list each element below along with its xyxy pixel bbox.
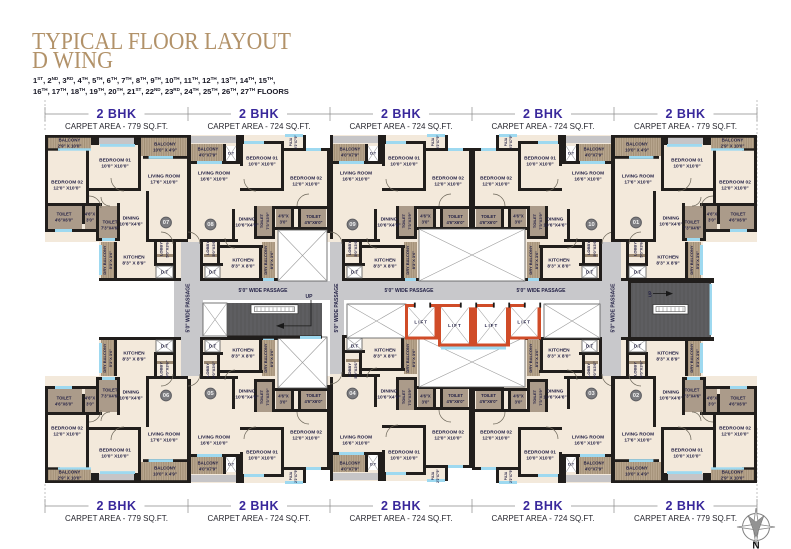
svg-text:3'0": 3'0" (422, 399, 430, 404)
svg-text:LIVING ROOM: LIVING ROOM (622, 431, 654, 437)
svg-text:3'0": 3'0" (280, 399, 288, 404)
svg-text:10'6"X4'6": 10'6"X4'6" (119, 222, 142, 228)
svg-text:BEDROOM 02: BEDROOM 02 (290, 429, 322, 435)
svg-text:2 BHK: 2 BHK (239, 499, 279, 513)
svg-text:4'6"X6'0": 4'6"X6'0" (446, 220, 464, 225)
svg-text:8'3"X 3'0": 8'3"X 3'0" (411, 251, 416, 269)
svg-text:8'3" X 8'9": 8'3" X 8'9" (122, 261, 145, 267)
svg-text:5'0"X3'6": 5'0"X3'6" (211, 361, 216, 378)
svg-text:4'6"X6'0": 4'6"X6'0" (304, 220, 322, 225)
svg-text:4'6"X6'0": 4'6"X6'0" (479, 399, 497, 404)
svg-text:D.T: D.T (161, 344, 169, 349)
svg-text:D.T: D.T (586, 270, 594, 275)
svg-text:5'0"X3'6": 5'0"X3'6" (592, 239, 597, 256)
svg-text:D.T: D.T (228, 152, 235, 156)
svg-text:12'0" X10'0": 12'0" X10'0" (434, 182, 461, 188)
svg-text:5'0"X3'6": 5'0"X3'6" (164, 240, 169, 257)
svg-text:2'2"X7'9": 2'2"X7'9" (294, 135, 298, 149)
svg-text:10'6"X4'6": 10'6"X4'6" (377, 223, 400, 229)
svg-text:TOILET: TOILET (103, 388, 118, 393)
svg-text:BEDROOM 02: BEDROOM 02 (719, 179, 751, 185)
svg-text:7'3"X3'9": 7'3"X3'9" (407, 388, 412, 405)
svg-text:10'0" X10'0": 10'0" X10'0" (673, 164, 700, 170)
svg-text:CARPET AREA - 724 SQ.FT.: CARPET AREA - 724 SQ.FT. (208, 122, 311, 131)
svg-text:03: 03 (588, 391, 595, 397)
svg-text:LIVING ROOM: LIVING ROOM (622, 173, 654, 179)
svg-text:4'6"X: 4'6"X (513, 214, 524, 219)
svg-text:7'3"X3'9": 7'3"X3'9" (407, 212, 412, 229)
svg-text:DRY BALCONY: DRY BALCONY (405, 245, 410, 274)
svg-text:4'0"X7'9": 4'0"X7'9" (585, 152, 603, 157)
svg-text:09: 09 (349, 222, 356, 228)
svg-text:4'0"X7'9": 4'0"X7'9" (341, 152, 359, 157)
svg-text:4'6"X: 4'6"X (420, 214, 431, 219)
svg-text:BALCONY: BALCONY (626, 141, 648, 146)
svg-text:8'3" X 8'9": 8'3" X 8'9" (656, 261, 679, 267)
svg-text:DRY BALCONY: DRY BALCONY (102, 343, 107, 372)
svg-text:10'0" X10'0": 10'0" X10'0" (101, 454, 128, 460)
svg-text:TOILET: TOILET (532, 389, 537, 404)
svg-text:2 BHK: 2 BHK (96, 107, 136, 121)
svg-text:2 BHK: 2 BHK (523, 107, 563, 121)
svg-text:8'3"X 3'0": 8'3"X 3'0" (534, 251, 539, 269)
svg-text:DINING: DINING (547, 388, 564, 394)
svg-text:17'6" X10'0": 17'6" X10'0" (150, 438, 177, 444)
svg-text:8'3" X 8'9": 8'3" X 8'9" (656, 357, 679, 363)
svg-text:5'3"X 3'0": 5'3"X 3'0" (108, 251, 113, 269)
svg-text:DINING: DINING (663, 215, 680, 221)
svg-text:BALCONY: BALCONY (722, 138, 744, 143)
svg-text:2 BHK: 2 BHK (381, 499, 421, 513)
svg-text:10'0" X10'0": 10'0" X10'0" (390, 162, 417, 168)
svg-text:4'6"X: 4'6"X (278, 214, 289, 219)
svg-text:DINING: DINING (381, 388, 398, 394)
svg-text:10'6"X4'6": 10'6"X4'6" (235, 223, 258, 229)
svg-text:17'6" X10'0": 17'6" X10'0" (150, 180, 177, 186)
svg-text:8'3"X 3'0": 8'3"X 3'0" (269, 251, 274, 269)
svg-text:DINING: DINING (547, 216, 564, 222)
svg-text:8'3" X 8'0": 8'3" X 8'0" (547, 354, 570, 360)
svg-text:10'6"X4'6": 10'6"X4'6" (659, 222, 682, 228)
svg-text:LOBBY: LOBBY (633, 362, 638, 376)
svg-text:D.T: D.T (351, 344, 359, 349)
svg-text:D.T: D.T (568, 463, 575, 467)
svg-text:DRY BALCONY: DRY BALCONY (405, 343, 410, 372)
svg-text:BALCONY: BALCONY (154, 466, 176, 471)
svg-text:10'0" X10'0": 10'0" X10'0" (673, 454, 700, 460)
svg-text:2 BHK: 2 BHK (239, 107, 279, 121)
svg-text:5'0"X3'6": 5'0"X3'6" (164, 360, 169, 377)
svg-text:CARPET AREA - 779 SQ.FT.: CARPET AREA - 779 SQ.FT. (634, 514, 737, 523)
svg-text:LIFT: LIFT (414, 319, 428, 324)
svg-text:BEDROOM 01: BEDROOM 01 (99, 157, 131, 163)
svg-text:4'6"X6'0": 4'6"X6'0" (446, 399, 464, 404)
svg-text:LOBBY: LOBBY (586, 363, 591, 377)
svg-text:3'0": 3'0" (515, 399, 523, 404)
svg-text:5'0" WIDE PASSAGE: 5'0" WIDE PASSAGE (611, 283, 617, 333)
svg-text:5'0"X3'6": 5'0"X3'6" (638, 360, 643, 377)
svg-text:CARPET AREA - 779 SQ.FT.: CARPET AREA - 779 SQ.FT. (65, 122, 168, 131)
svg-text:BEDROOM 01: BEDROOM 01 (671, 157, 703, 163)
svg-text:PUJA: PUJA (431, 471, 435, 480)
svg-text:BEDROOM 01: BEDROOM 01 (246, 155, 278, 161)
svg-text:4'6"X6'0": 4'6"X6'0" (304, 399, 322, 404)
svg-text:DINING: DINING (239, 216, 256, 222)
svg-text:10'0" X10'0": 10'0" X10'0" (248, 456, 275, 462)
svg-text:DRY BALCONY: DRY BALCONY (689, 343, 694, 372)
svg-text:LIVING ROOM: LIVING ROOM (340, 434, 372, 440)
svg-text:5'3"X 3'0": 5'3"X 3'0" (695, 349, 700, 367)
svg-text:N: N (752, 541, 759, 549)
svg-text:D.T: D.T (351, 270, 359, 275)
svg-text:KITCHEN: KITCHEN (657, 254, 679, 260)
svg-text:3'0": 3'0" (422, 219, 430, 224)
svg-text:PUJA: PUJA (289, 471, 293, 480)
svg-text:4'6"X: 4'6"X (707, 212, 718, 217)
svg-text:04: 04 (349, 391, 356, 397)
svg-text:BEDROOM 02: BEDROOM 02 (719, 425, 751, 431)
svg-text:5'0" WIDE PASSAGE: 5'0" WIDE PASSAGE (384, 288, 434, 294)
svg-text:10'0" X 4'9": 10'0" X 4'9" (153, 147, 177, 152)
svg-text:BALCONY: BALCONY (340, 147, 361, 152)
svg-text:DRY BALCONY: DRY BALCONY (528, 343, 533, 372)
svg-text:DRY BALCONY: DRY BALCONY (102, 245, 107, 274)
svg-text:10'6"X4'6": 10'6"X4'6" (119, 396, 142, 402)
svg-text:KITCHEN: KITCHEN (657, 350, 679, 356)
svg-text:LIFT: LIFT (485, 323, 499, 328)
svg-text:2'9" X 10'0": 2'9" X 10'0" (58, 476, 82, 481)
svg-text:5'0" WIDE PASSAGE: 5'0" WIDE PASSAGE (186, 283, 192, 333)
svg-text:BEDROOM 01: BEDROOM 01 (388, 155, 420, 161)
svg-text:LIVING ROOM: LIVING ROOM (148, 173, 180, 179)
svg-text:D.T: D.T (161, 270, 169, 275)
svg-text:4'6"X: 4'6"X (85, 212, 96, 217)
svg-text:2'2"X7'9": 2'2"X7'9" (509, 469, 513, 483)
svg-text:4'6"X6'0": 4'6"X6'0" (55, 401, 73, 406)
svg-text:4'6"X: 4'6"X (85, 396, 96, 401)
svg-text:CARPET AREA - 724 SQ.FT.: CARPET AREA - 724 SQ.FT. (492, 122, 595, 131)
svg-text:5'0"X3'6": 5'0"X3'6" (211, 239, 216, 256)
svg-text:BALCONY: BALCONY (340, 461, 361, 466)
svg-text:D.T: D.T (228, 463, 235, 467)
svg-text:3'0": 3'0" (708, 217, 716, 222)
svg-text:7'3"X4'6": 7'3"X4'6" (683, 225, 701, 230)
svg-text:10'0" X 4'9": 10'0" X 4'9" (153, 472, 177, 477)
svg-text:KITCHEN: KITCHEN (374, 257, 396, 263)
svg-text:TOILET: TOILET (481, 393, 496, 398)
svg-text:LIVING ROOM: LIVING ROOM (572, 170, 604, 176)
svg-text:KITCHEN: KITCHEN (232, 347, 254, 353)
svg-text:TOILET: TOILET (532, 213, 537, 228)
svg-text:D.T: D.T (209, 270, 217, 275)
svg-text:BEDROOM 02: BEDROOM 02 (432, 175, 464, 181)
svg-text:12'0" X10'0": 12'0" X10'0" (721, 186, 748, 192)
svg-text:8'3"X 3'0": 8'3"X 3'0" (411, 349, 416, 367)
svg-text:TOILET: TOILET (306, 393, 321, 398)
svg-text:12'0" X10'0": 12'0" X10'0" (292, 182, 319, 188)
svg-text:10'6"X4'6": 10'6"X4'6" (543, 395, 566, 401)
svg-text:LOBBY: LOBBY (347, 363, 352, 377)
svg-text:2'2"X7'9": 2'2"X7'9" (509, 135, 513, 149)
svg-text:TOILET: TOILET (306, 214, 321, 219)
svg-text:BALCONY: BALCONY (59, 470, 81, 475)
svg-text:5'0"X3'6": 5'0"X3'6" (353, 361, 358, 378)
svg-text:2'2"X7'9": 2'2"X7'9" (436, 469, 440, 483)
svg-text:5'0"X3'6": 5'0"X3'6" (638, 240, 643, 257)
svg-text:D WING: D WING (32, 48, 113, 74)
svg-text:D.T: D.T (634, 270, 642, 275)
svg-text:KITCHEN: KITCHEN (548, 257, 570, 263)
svg-text:TOILET: TOILET (57, 212, 72, 217)
svg-text:06: 06 (163, 393, 170, 399)
svg-text:4'6"X: 4'6"X (420, 394, 431, 399)
svg-text:4'0"X7'9": 4'0"X7'9" (341, 466, 359, 471)
svg-text:7'3"X3'9": 7'3"X3'9" (265, 388, 270, 405)
svg-text:16'6" X10'0": 16'6" X10'0" (574, 441, 601, 447)
svg-text:BALCONY: BALCONY (626, 466, 648, 471)
svg-text:2 BHK: 2 BHK (665, 107, 705, 121)
svg-text:CARPET AREA - 724 SQ.FT.: CARPET AREA - 724 SQ.FT. (350, 122, 453, 131)
svg-text:BALCONY: BALCONY (722, 470, 744, 475)
svg-text:BEDROOM 02: BEDROOM 02 (480, 175, 512, 181)
svg-text:DRY BALCONY: DRY BALCONY (263, 343, 268, 372)
svg-text:TOILET: TOILET (685, 388, 700, 393)
svg-text:8'3" X 8'0": 8'3" X 8'0" (231, 354, 254, 360)
svg-text:BEDROOM 02: BEDROOM 02 (432, 429, 464, 435)
svg-text:12'0" X10'0": 12'0" X10'0" (53, 186, 80, 192)
svg-text:D.T: D.T (586, 344, 594, 349)
svg-text:BALCONY: BALCONY (198, 147, 219, 152)
svg-text:DRY BALCONY: DRY BALCONY (528, 245, 533, 274)
svg-text:7'3"X3'9": 7'3"X3'9" (538, 212, 543, 229)
svg-text:4'6"X6'0": 4'6"X6'0" (479, 220, 497, 225)
svg-text:10'0" X 4'9": 10'0" X 4'9" (625, 147, 649, 152)
svg-text:TOILET: TOILET (57, 396, 72, 401)
svg-text:LOBBY: LOBBY (159, 362, 164, 376)
svg-text:5'0"X3'6": 5'0"X3'6" (592, 361, 597, 378)
svg-text:8'3" X 8'9": 8'3" X 8'9" (122, 357, 145, 363)
svg-text:16'6" X10'0": 16'6" X10'0" (200, 177, 227, 183)
svg-text:TOILET: TOILET (401, 213, 406, 228)
svg-text:5'3"X 3'0": 5'3"X 3'0" (108, 349, 113, 367)
svg-text:TOILET: TOILET (103, 220, 118, 225)
svg-text:2 BHK: 2 BHK (665, 499, 705, 513)
svg-text:3'0": 3'0" (86, 217, 94, 222)
svg-text:KITCHEN: KITCHEN (374, 347, 396, 353)
svg-text:5'0" WIDE PASSAGE: 5'0" WIDE PASSAGE (334, 283, 340, 333)
svg-text:7'3"X3'9": 7'3"X3'9" (538, 388, 543, 405)
svg-text:BALCONY: BALCONY (198, 461, 219, 466)
svg-text:8'3" X 8'0": 8'3" X 8'0" (547, 264, 570, 270)
svg-text:01: 01 (633, 220, 640, 226)
svg-text:DRY BALCONY: DRY BALCONY (263, 245, 268, 274)
svg-text:LIFT: LIFT (448, 323, 462, 328)
svg-text:05: 05 (207, 391, 214, 397)
svg-text:2'2"X7'9": 2'2"X7'9" (436, 135, 440, 149)
svg-text:BEDROOM 01: BEDROOM 01 (99, 447, 131, 453)
svg-text:16'6" X10'0": 16'6" X10'0" (342, 441, 369, 447)
svg-text:D.T: D.T (370, 463, 377, 467)
svg-text:D.T: D.T (568, 152, 575, 156)
svg-text:12'0" X10'0": 12'0" X10'0" (482, 182, 509, 188)
svg-text:LIVING ROOM: LIVING ROOM (148, 431, 180, 437)
svg-text:LIFT: LIFT (517, 319, 531, 324)
svg-text:CARPET AREA - 724 SQ.FT.: CARPET AREA - 724 SQ.FT. (208, 514, 311, 523)
svg-text:TOILET: TOILET (259, 213, 264, 228)
svg-text:KITCHEN: KITCHEN (123, 350, 145, 356)
svg-text:PUJA: PUJA (504, 471, 508, 480)
svg-text:12'0" X10'0": 12'0" X10'0" (53, 432, 80, 438)
svg-text:BALCONY: BALCONY (584, 147, 605, 152)
svg-text:DINING: DINING (381, 216, 398, 222)
svg-text:TOILET: TOILET (731, 212, 746, 217)
svg-text:12'0" X10'0": 12'0" X10'0" (434, 436, 461, 442)
svg-text:LOBBY: LOBBY (347, 241, 352, 255)
svg-text:BEDROOM 02: BEDROOM 02 (51, 425, 83, 431)
svg-text:TOILET: TOILET (401, 389, 406, 404)
svg-text:08: 08 (207, 222, 214, 228)
svg-text:BEDROOM 01: BEDROOM 01 (246, 449, 278, 455)
svg-text:TOILET: TOILET (481, 214, 496, 219)
svg-text:10'6"X4'6": 10'6"X4'6" (235, 395, 258, 401)
svg-text:10'6"X4'6": 10'6"X4'6" (543, 223, 566, 229)
svg-text:8'3"X 3'0": 8'3"X 3'0" (534, 349, 539, 367)
svg-text:UP: UP (306, 294, 314, 300)
svg-text:LOBBY: LOBBY (205, 241, 210, 255)
svg-text:CARPET AREA - 779 SQ.FT.: CARPET AREA - 779 SQ.FT. (65, 514, 168, 523)
svg-text:07: 07 (163, 220, 169, 226)
svg-text:10'6"X4'6": 10'6"X4'6" (659, 396, 682, 402)
svg-text:D.T: D.T (209, 344, 217, 349)
svg-text:5'3"X 3'0": 5'3"X 3'0" (695, 251, 700, 269)
svg-text:BEDROOM 01: BEDROOM 01 (388, 449, 420, 455)
svg-text:8'3" X 8'0": 8'3" X 8'0" (373, 354, 396, 360)
svg-text:5'0" WIDE PASSAGE: 5'0" WIDE PASSAGE (238, 288, 288, 294)
svg-text:LOBBY: LOBBY (633, 242, 638, 256)
svg-text:7'3"X4'6": 7'3"X4'6" (101, 393, 119, 398)
svg-text:10'0" X10'0": 10'0" X10'0" (390, 456, 417, 462)
svg-text:8'3" X 8'0": 8'3" X 8'0" (373, 264, 396, 270)
svg-text:TOILET: TOILET (731, 396, 746, 401)
svg-text:5'0" WIDE PASSAGE: 5'0" WIDE PASSAGE (516, 288, 566, 294)
svg-text:BALCONY: BALCONY (584, 461, 605, 466)
svg-text:CARPET AREA - 724 SQ.FT.: CARPET AREA - 724 SQ.FT. (350, 514, 453, 523)
svg-text:2 BHK: 2 BHK (96, 499, 136, 513)
svg-text:BEDROOM 01: BEDROOM 01 (671, 447, 703, 453)
svg-text:8'3" X 8'0": 8'3" X 8'0" (231, 264, 254, 270)
svg-text:BEDROOM 02: BEDROOM 02 (290, 175, 322, 181)
svg-text:2 BHK: 2 BHK (523, 499, 563, 513)
svg-text:4'6"X: 4'6"X (278, 394, 289, 399)
svg-text:2'9" X 10'0": 2'9" X 10'0" (58, 144, 82, 149)
svg-text:TOILET: TOILET (259, 389, 264, 404)
svg-text:10: 10 (588, 222, 594, 228)
svg-text:2'2"X7'9": 2'2"X7'9" (294, 469, 298, 483)
svg-text:7'3"X4'6": 7'3"X4'6" (683, 393, 701, 398)
svg-text:LIVING ROOM: LIVING ROOM (198, 170, 230, 176)
svg-text:10'0" X10'0": 10'0" X10'0" (101, 164, 128, 170)
svg-text:LOBBY: LOBBY (205, 363, 210, 377)
svg-text:3'0": 3'0" (86, 401, 94, 406)
svg-text:4'6"X: 4'6"X (707, 396, 718, 401)
svg-text:8'3"X 3'0": 8'3"X 3'0" (269, 349, 274, 367)
svg-text:10'0" X10'0": 10'0" X10'0" (248, 162, 275, 168)
svg-text:5'0"X3'6": 5'0"X3'6" (353, 239, 358, 256)
svg-text:10'0" X10'0": 10'0" X10'0" (526, 162, 553, 168)
svg-text:TOILET: TOILET (448, 214, 463, 219)
svg-text:16'6" X10'0": 16'6" X10'0" (342, 177, 369, 183)
svg-text:4'0"X7'9": 4'0"X7'9" (199, 466, 217, 471)
svg-text:BALCONY: BALCONY (59, 138, 81, 143)
svg-text:16'6" X10'0": 16'6" X10'0" (200, 441, 227, 447)
svg-text:TOILET: TOILET (448, 393, 463, 398)
svg-text:12'0" X10'0": 12'0" X10'0" (292, 436, 319, 442)
svg-text:02: 02 (633, 393, 639, 399)
svg-text:12'0" X10'0": 12'0" X10'0" (721, 432, 748, 438)
svg-text:4'0"X7'9": 4'0"X7'9" (199, 152, 217, 157)
svg-text:BEDROOM 01: BEDROOM 01 (524, 449, 556, 455)
svg-text:7'3"X4'6": 7'3"X4'6" (101, 225, 119, 230)
svg-text:KITCHEN: KITCHEN (548, 347, 570, 353)
svg-text:BALCONY: BALCONY (154, 141, 176, 146)
svg-text:PUJA: PUJA (289, 137, 293, 146)
svg-text:BEDROOM 02: BEDROOM 02 (51, 179, 83, 185)
svg-text:3'0": 3'0" (515, 219, 523, 224)
svg-text:D.T: D.T (370, 152, 377, 156)
svg-text:D.T: D.T (634, 344, 642, 349)
svg-text:PUJA: PUJA (504, 137, 508, 146)
svg-text:2'9" X 10'0": 2'9" X 10'0" (721, 144, 745, 149)
svg-text:17'6" X10'0": 17'6" X10'0" (624, 180, 651, 186)
svg-text:3'0": 3'0" (708, 401, 716, 406)
svg-text:BEDROOM 02: BEDROOM 02 (480, 429, 512, 435)
svg-text:LIVING ROOM: LIVING ROOM (340, 170, 372, 176)
svg-text:16'6" X10'0": 16'6" X10'0" (574, 177, 601, 183)
svg-text:10'0" X10'0": 10'0" X10'0" (526, 456, 553, 462)
svg-text:LIVING ROOM: LIVING ROOM (572, 434, 604, 440)
svg-text:DINING: DINING (123, 389, 140, 395)
svg-text:LIVING ROOM: LIVING ROOM (198, 434, 230, 440)
svg-text:LOBBY: LOBBY (159, 242, 164, 256)
svg-text:10'6"X4'6": 10'6"X4'6" (377, 395, 400, 401)
svg-text:3'0": 3'0" (280, 219, 288, 224)
svg-text:PUJA: PUJA (431, 137, 435, 146)
svg-text:CARPET AREA - 779 SQ.FT.: CARPET AREA - 779 SQ.FT. (634, 122, 737, 131)
svg-text:4'0"X7'9": 4'0"X7'9" (585, 466, 603, 471)
svg-text:4'6"X6'0": 4'6"X6'0" (729, 217, 747, 222)
svg-text:KITCHEN: KITCHEN (232, 257, 254, 263)
svg-text:4'6"X6'0": 4'6"X6'0" (729, 401, 747, 406)
svg-text:DINING: DINING (239, 388, 256, 394)
svg-text:2'9" X 10'0": 2'9" X 10'0" (721, 476, 745, 481)
svg-text:12'0" X10'0": 12'0" X10'0" (482, 436, 509, 442)
svg-text:LOBBY: LOBBY (586, 241, 591, 255)
svg-text:4'6"X6'0": 4'6"X6'0" (55, 217, 73, 222)
svg-text:4'6"X: 4'6"X (513, 394, 524, 399)
svg-text:DINING: DINING (123, 215, 140, 221)
svg-text:17'6" X10'0": 17'6" X10'0" (624, 438, 651, 444)
svg-text:10'0" X 4'9": 10'0" X 4'9" (625, 472, 649, 477)
svg-text:2 BHK: 2 BHK (381, 107, 421, 121)
svg-text:UP: UP (648, 291, 653, 297)
svg-text:DINING: DINING (663, 389, 680, 395)
svg-text:DRY BALCONY: DRY BALCONY (689, 245, 694, 274)
svg-text:CARPET AREA - 724 SQ.FT.: CARPET AREA - 724 SQ.FT. (492, 514, 595, 523)
svg-text:7'3"X3'9": 7'3"X3'9" (265, 212, 270, 229)
svg-text:KITCHEN: KITCHEN (123, 254, 145, 260)
svg-text:TOILET: TOILET (685, 220, 700, 225)
svg-text:BEDROOM 01: BEDROOM 01 (524, 155, 556, 161)
